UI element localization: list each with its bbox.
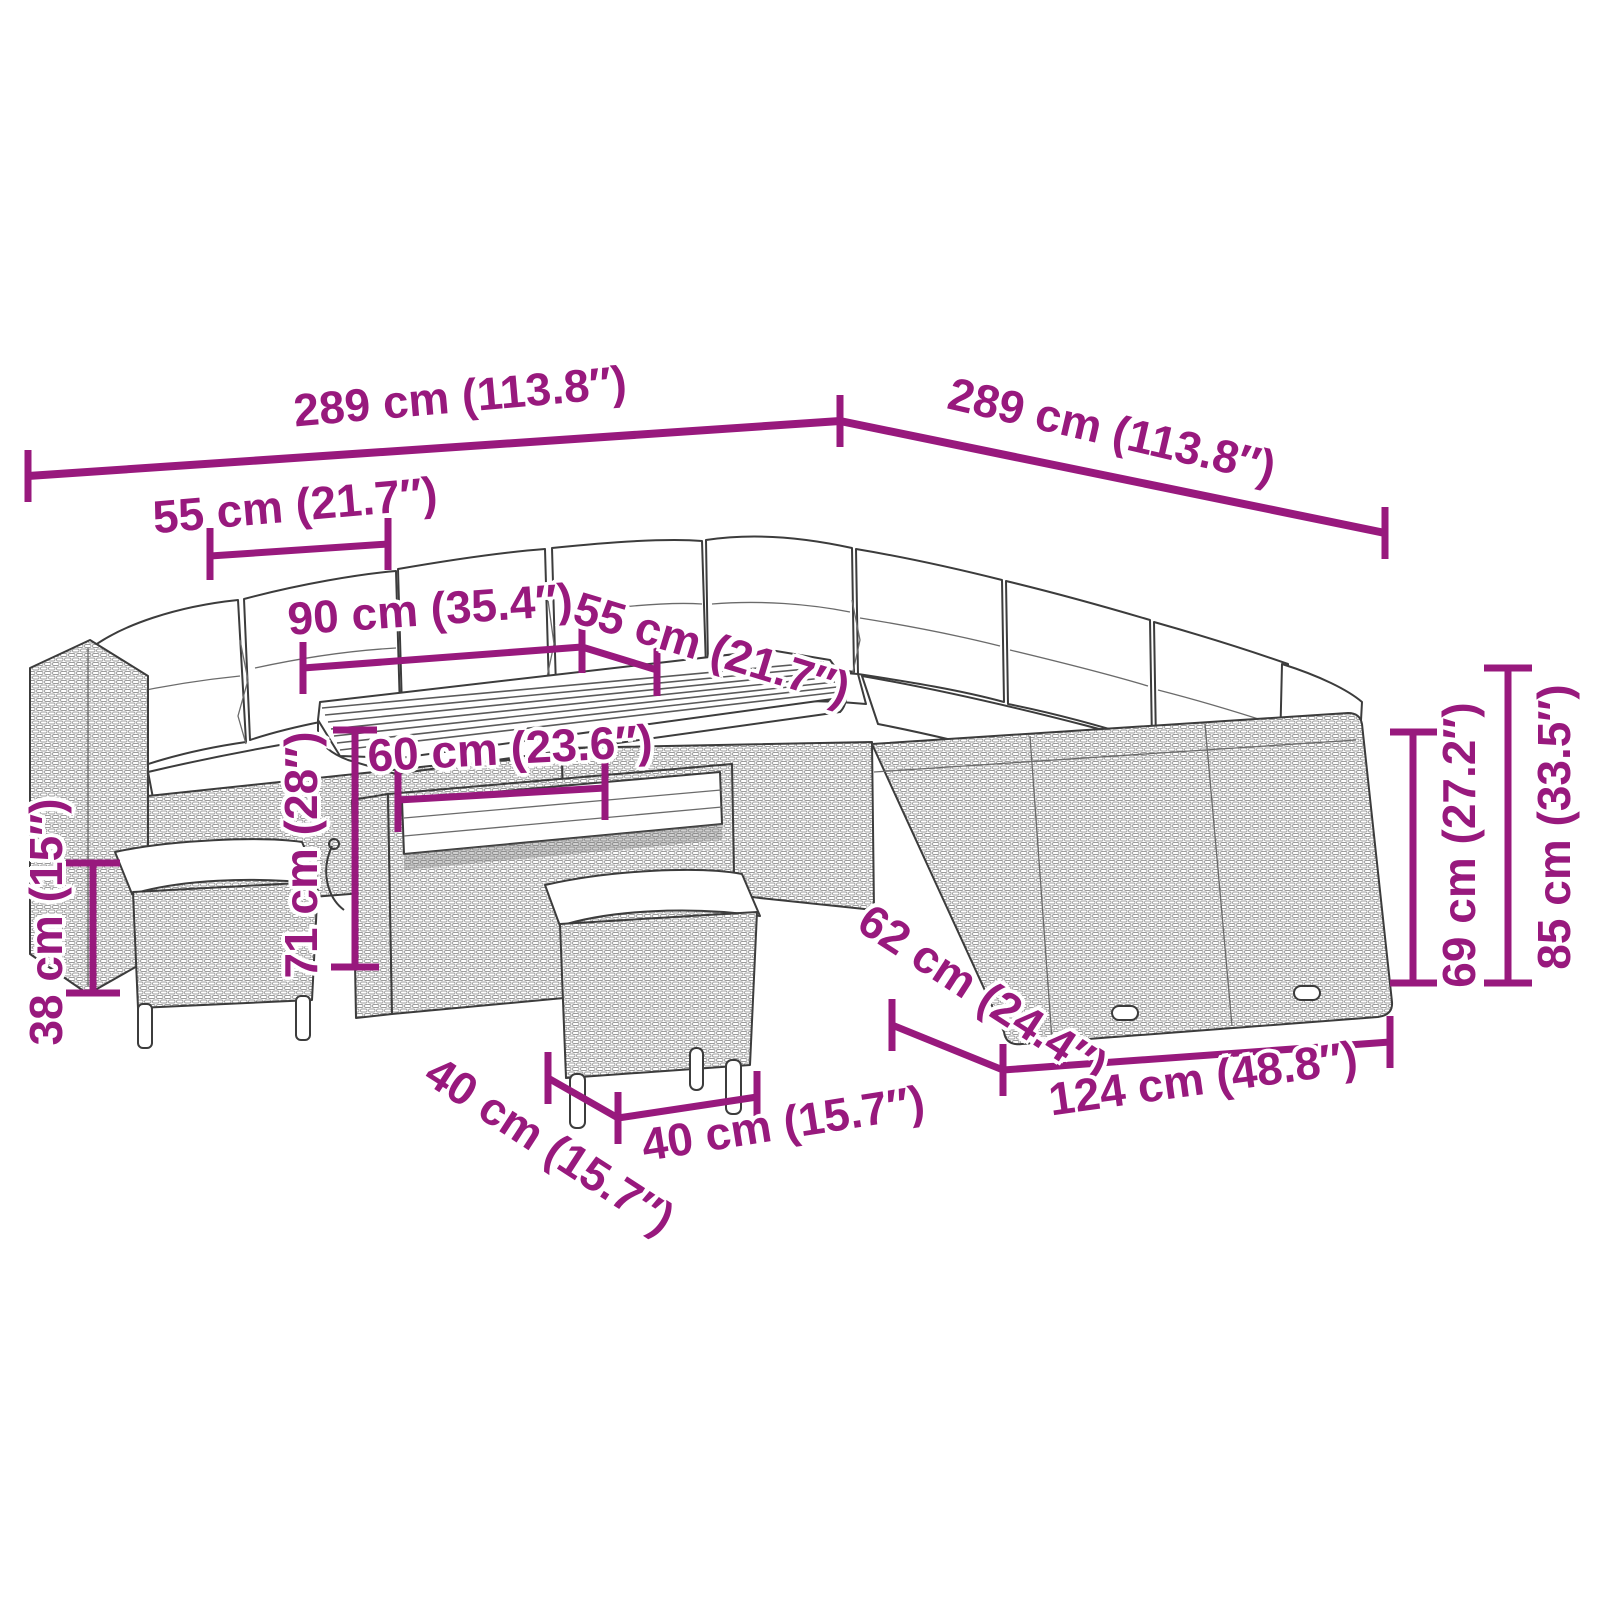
dim-line-stool-depth — [548, 1078, 618, 1118]
dim-line-table-width — [398, 788, 605, 800]
dim-label-seat-back-height: 69 cm (27.2″) — [1432, 702, 1486, 987]
dimension-diagram-canvas: 289 cm (113.8″) 289 cm (113.8″) 55 cm (2… — [0, 0, 1600, 1600]
dimension-lines — [0, 0, 1600, 1600]
dim-label-total-height: 85 cm (33.5″) — [1527, 684, 1581, 969]
dim-line-module-width — [210, 544, 388, 556]
dim-label-stool-height: 38 cm (15″) — [19, 798, 73, 1045]
dim-line-sofa-depth — [892, 1025, 1003, 1070]
dim-label-table-height: 71 cm (28″) — [274, 731, 328, 978]
dim-line-table-length — [303, 647, 582, 668]
